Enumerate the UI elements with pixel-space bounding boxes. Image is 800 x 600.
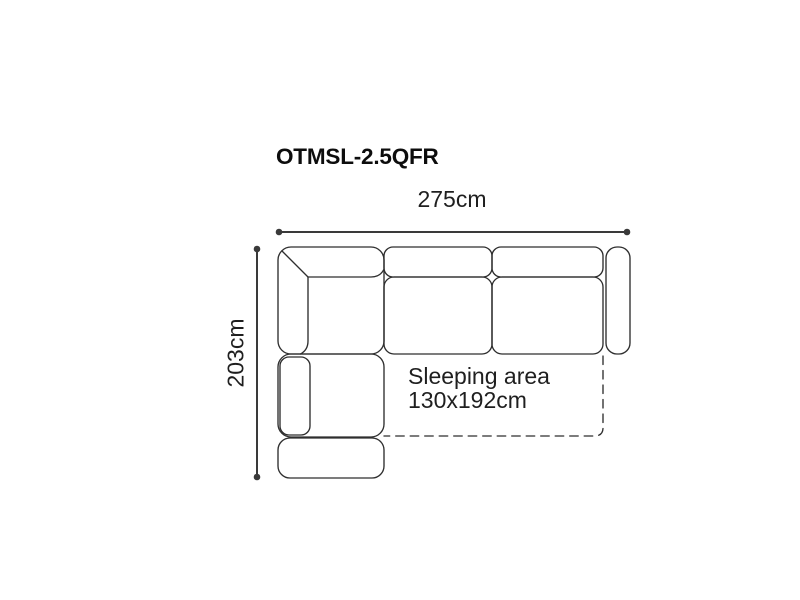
product-model-title: OTMSL-2.5QFR: [276, 144, 439, 170]
back-cushion-right: [492, 247, 603, 277]
dimension-endpoint-dot: [254, 474, 261, 481]
sleeping-area-label: Sleeping area 130x192cm: [408, 364, 550, 412]
corner-backrest-bottom-edge: [308, 270, 384, 277]
dimension-endpoint-dot: [254, 246, 261, 253]
depth-dimension-group: [254, 246, 261, 481]
seat-cushion-right: [492, 277, 603, 354]
sleeping-area-size: 130x192cm: [408, 388, 550, 412]
corner-miter-line: [282, 251, 308, 277]
seat-cushion-left: [384, 277, 492, 354]
corner-backrest-right-edge: [301, 277, 309, 354]
sofa-dimension-diagram: [0, 0, 800, 600]
chaise-armrest-outline: [280, 357, 310, 435]
sofa-diagram-canvas: OTMSL-2.5QFR 275cm 203cm Sleeping area 1…: [0, 0, 800, 600]
dimension-endpoint-dot: [276, 229, 283, 236]
depth-dimension-label: 203cm: [223, 318, 250, 387]
back-cushion-left: [384, 247, 492, 277]
right-armrest-outline: [606, 247, 630, 354]
sleeping-area-text: Sleeping area: [408, 364, 550, 388]
ottoman-outline: [278, 438, 384, 478]
width-dimension-group: [276, 229, 631, 236]
chaise-section-outline: [278, 354, 384, 437]
dimension-endpoint-dot: [624, 229, 631, 236]
width-dimension-label: 275cm: [406, 187, 498, 211]
